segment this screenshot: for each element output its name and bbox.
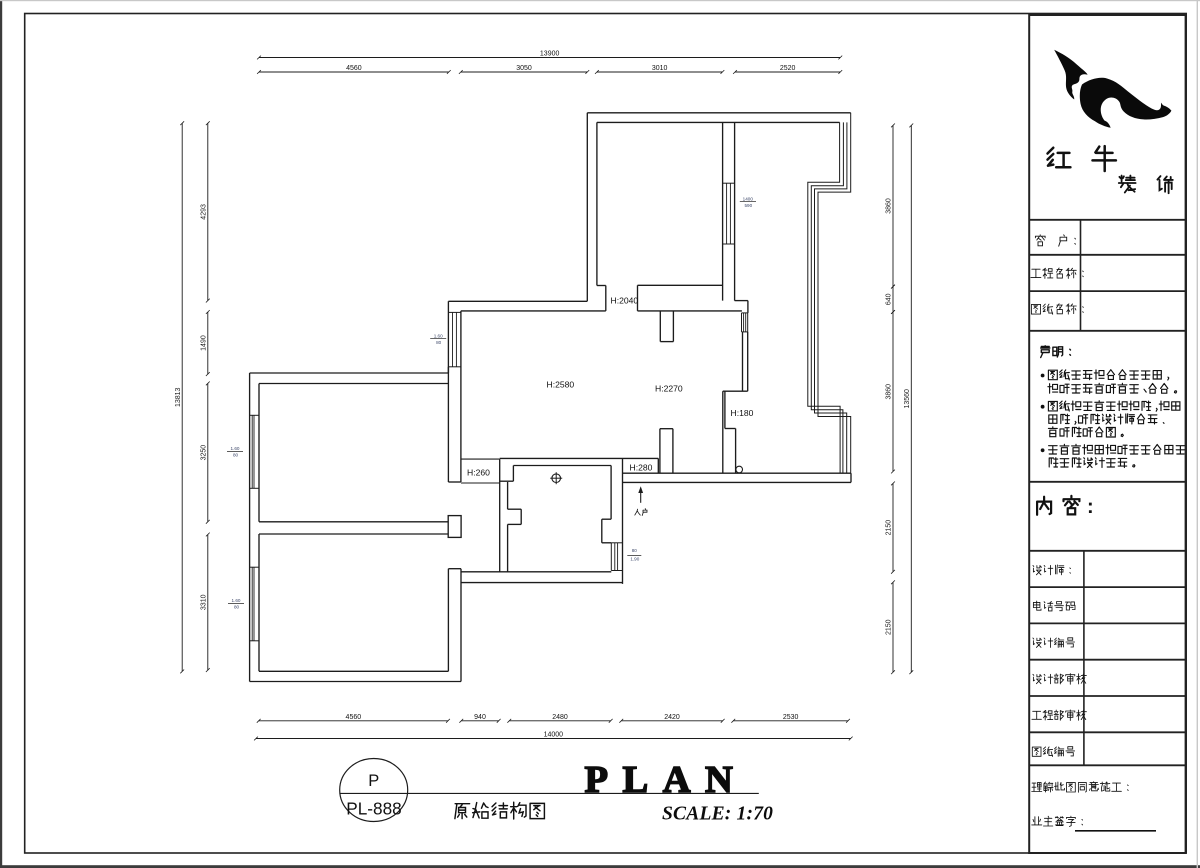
svg-text:3860: 3860	[886, 384, 893, 400]
svg-text:1400: 1400	[743, 196, 754, 201]
svg-text:4560: 4560	[346, 65, 362, 72]
svg-text:4560: 4560	[346, 714, 362, 721]
svg-text:2480: 2480	[552, 714, 568, 721]
svg-text:1.60: 1.60	[232, 598, 241, 603]
svg-text:SCALE: 1:70: SCALE: 1:70	[662, 804, 773, 825]
svg-text:80: 80	[632, 548, 638, 553]
svg-text:2420: 2420	[664, 714, 680, 721]
svg-text:H:280: H:280	[630, 462, 653, 472]
svg-text:3010: 3010	[652, 65, 668, 72]
svg-text:1490: 1490	[200, 335, 207, 351]
svg-text:3050: 3050	[516, 65, 532, 72]
svg-text:2520: 2520	[780, 65, 796, 72]
svg-text:H:2270: H:2270	[655, 384, 683, 394]
svg-text:3250: 3250	[200, 445, 207, 461]
svg-text:H:180: H:180	[731, 408, 754, 418]
svg-text:3310: 3310	[200, 594, 207, 610]
svg-text:2150: 2150	[886, 520, 893, 536]
svg-text:1.90: 1.90	[630, 557, 639, 562]
svg-text:13900: 13900	[540, 51, 560, 58]
svg-text:PL-888: PL-888	[346, 799, 401, 819]
svg-text:80: 80	[436, 340, 442, 345]
svg-text:3860: 3860	[886, 198, 893, 214]
svg-text:4293: 4293	[200, 204, 207, 220]
svg-text:14000: 14000	[544, 732, 564, 739]
svg-text::: :	[1087, 496, 1094, 518]
svg-text:80: 80	[233, 453, 239, 458]
svg-text:80: 80	[234, 605, 240, 610]
svg-text:640: 640	[886, 293, 893, 305]
svg-text:13813: 13813	[175, 387, 182, 407]
svg-text:H:260: H:260	[467, 468, 490, 478]
svg-text:H:2580: H:2580	[547, 379, 575, 389]
svg-text:940: 940	[474, 714, 486, 721]
svg-text:13560: 13560	[904, 389, 911, 409]
svg-text:P: P	[368, 772, 379, 790]
svg-text:2150: 2150	[886, 619, 893, 635]
svg-text:2530: 2530	[783, 714, 799, 721]
svg-text:1.60: 1.60	[231, 446, 240, 451]
svg-text:PLAN: PLAN	[585, 759, 748, 801]
svg-text:590: 590	[744, 203, 752, 208]
svg-text:1.60: 1.60	[434, 333, 443, 338]
svg-text:H:2040: H:2040	[611, 295, 639, 305]
